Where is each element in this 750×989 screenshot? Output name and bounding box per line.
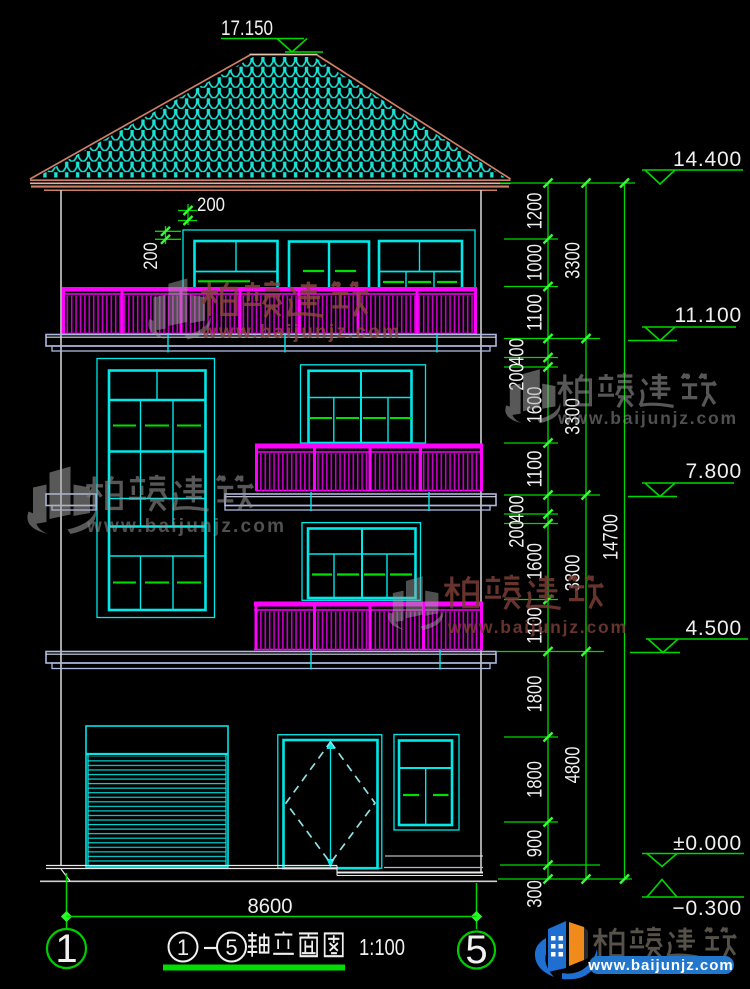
svg-text:5: 5 — [225, 935, 237, 960]
svg-text:1: 1 — [177, 935, 189, 960]
svg-text:www.baijunjz.com: www.baijunjz.com — [557, 408, 738, 428]
svg-text:14.400: 14.400 — [673, 148, 742, 171]
svg-text:8600: 8600 — [248, 895, 293, 918]
svg-text:1600: 1600 — [524, 543, 547, 580]
svg-text:1000: 1000 — [524, 244, 547, 281]
svg-text:400: 400 — [506, 338, 529, 366]
svg-text:200: 200 — [197, 195, 225, 216]
svg-text:1800: 1800 — [524, 761, 547, 798]
svg-text:7.800: 7.800 — [685, 460, 742, 483]
svg-text:www.baijunjz.com: www.baijunjz.com — [86, 516, 286, 537]
svg-text:200: 200 — [141, 242, 162, 270]
svg-text:14700: 14700 — [600, 514, 623, 560]
svg-text:1: 1 — [55, 927, 77, 971]
svg-text:4800: 4800 — [562, 747, 585, 784]
svg-text:3300: 3300 — [562, 242, 585, 279]
svg-text:www.baijunjz.com: www.baijunjz.com — [201, 322, 401, 343]
svg-text:900: 900 — [524, 830, 547, 858]
svg-text:1100: 1100 — [524, 294, 547, 331]
svg-text:5: 5 — [465, 928, 487, 972]
svg-text:−0.300: −0.300 — [672, 897, 742, 920]
svg-text:1200: 1200 — [524, 193, 547, 230]
svg-text:17.150: 17.150 — [221, 17, 273, 40]
svg-text:1:100: 1:100 — [359, 934, 405, 960]
svg-text:1100: 1100 — [524, 451, 547, 488]
svg-text:www.baijunjz.com: www.baijunjz.com — [587, 957, 733, 974]
svg-text:4.500: 4.500 — [685, 617, 742, 640]
svg-text:±0.000: ±0.000 — [673, 832, 742, 855]
svg-text:www.baijunjz.com: www.baijunjz.com — [447, 617, 628, 637]
svg-text:300: 300 — [524, 880, 547, 908]
svg-text:400: 400 — [506, 495, 529, 523]
svg-text:1800: 1800 — [524, 676, 547, 713]
svg-text:11.100: 11.100 — [675, 304, 742, 327]
